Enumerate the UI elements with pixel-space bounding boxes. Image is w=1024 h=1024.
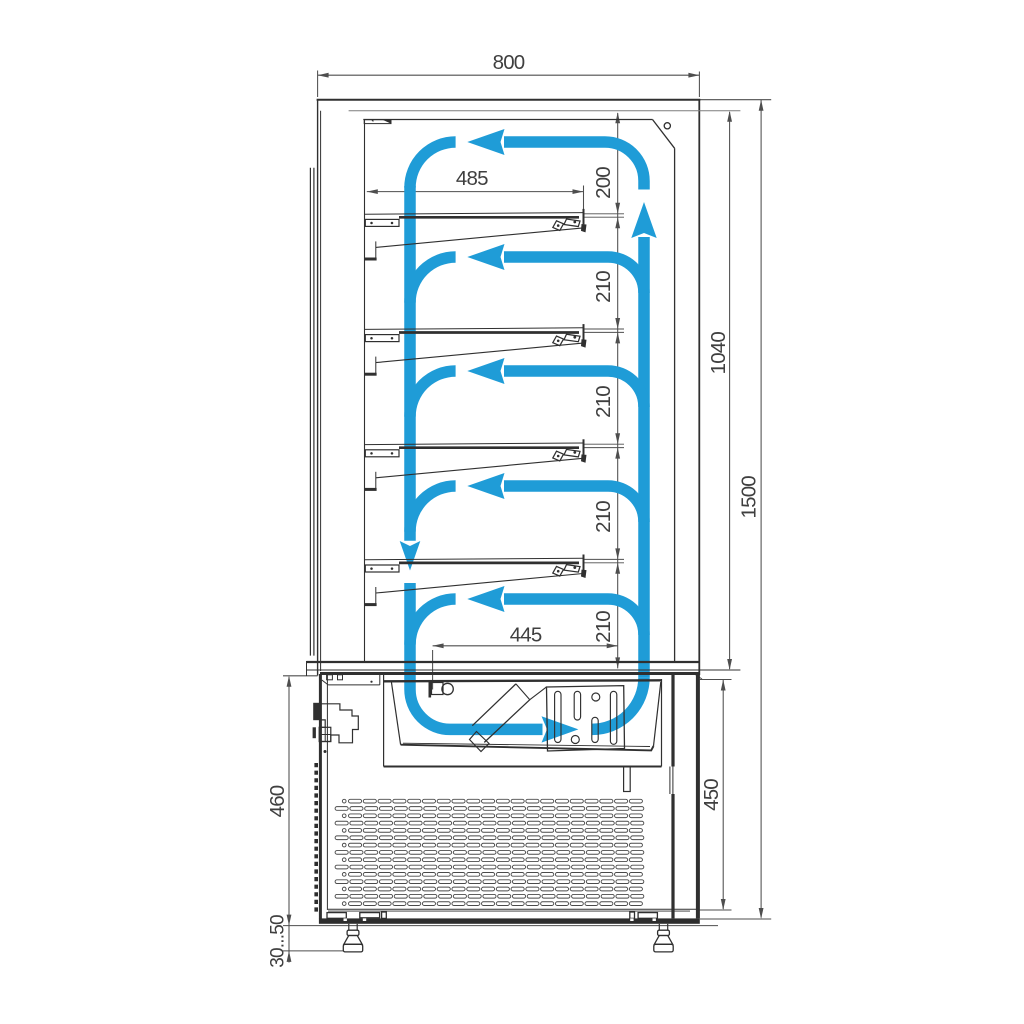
svg-text:450: 450 [700, 779, 723, 811]
svg-text:485: 485 [456, 167, 488, 190]
svg-text:445: 445 [510, 624, 542, 647]
svg-text:200: 200 [592, 167, 615, 199]
svg-text:460: 460 [266, 785, 289, 817]
svg-text:800: 800 [493, 51, 525, 74]
svg-text:1500: 1500 [737, 476, 760, 519]
svg-text:1040: 1040 [707, 332, 730, 375]
svg-text:210: 210 [592, 501, 615, 533]
svg-text:30...50: 30...50 [267, 915, 288, 968]
svg-text:210: 210 [592, 271, 615, 303]
svg-text:210: 210 [592, 386, 615, 418]
svg-text:210: 210 [592, 611, 615, 643]
